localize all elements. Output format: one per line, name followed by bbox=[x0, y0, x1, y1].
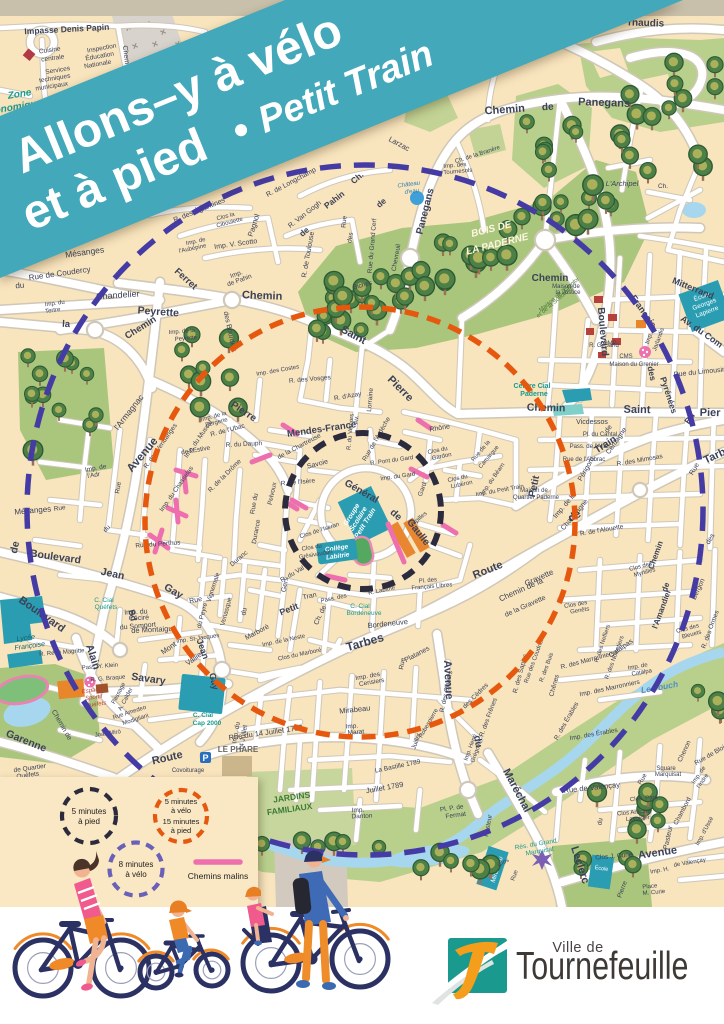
svg-text:15 minutes: 15 minutes bbox=[163, 817, 200, 826]
svg-text:Danton: Danton bbox=[351, 813, 373, 821]
svg-text:R. G. Sand: R. G. Sand bbox=[589, 343, 619, 349]
svg-text:Avenue: Avenue bbox=[441, 660, 455, 700]
svg-text:Saint: Saint bbox=[623, 404, 650, 416]
svg-text:Panegans: Panegans bbox=[578, 96, 630, 110]
svg-text:Quéfets: Quéfets bbox=[95, 604, 119, 611]
svg-text:L'Archipel: L'Archipel bbox=[606, 179, 639, 188]
svg-text:à vélo: à vélo bbox=[125, 870, 147, 879]
svg-text:5 minutes: 5 minutes bbox=[72, 807, 107, 816]
svg-text:Chemin: Chemin bbox=[527, 402, 566, 415]
svg-text:C. Cial: C. Cial bbox=[193, 712, 213, 719]
svg-text:P: P bbox=[202, 753, 208, 763]
svg-text:Marquisat: Marquisat bbox=[655, 772, 682, 778]
svg-text:CMS: CMS bbox=[619, 354, 632, 360]
svg-text:du: du bbox=[471, 735, 484, 749]
svg-text:Chemins malins: Chemins malins bbox=[188, 871, 248, 881]
svg-text:LE PHARE: LE PHARE bbox=[218, 745, 259, 754]
svg-text:à pied: à pied bbox=[78, 817, 100, 826]
svg-text:Paderne: Paderne bbox=[520, 391, 548, 398]
svg-text:Cap 2000: Cap 2000 bbox=[193, 720, 222, 727]
svg-text:C. Cial: C. Cial bbox=[94, 597, 114, 604]
svg-text:la: la bbox=[62, 319, 71, 330]
svg-text:8 minutes: 8 minutes bbox=[119, 860, 154, 869]
svg-text:C. Cial: C. Cial bbox=[350, 603, 370, 610]
svg-text:Chemin: Chemin bbox=[532, 273, 569, 284]
svg-text:Ch.: Ch. bbox=[658, 183, 668, 190]
svg-text:la Justice: la Justice bbox=[555, 290, 581, 296]
svg-text:de: de bbox=[8, 540, 22, 555]
svg-text:de: de bbox=[542, 102, 555, 114]
svg-text:Maison du Grenier: Maison du Grenier bbox=[609, 362, 658, 368]
svg-text:Tournefeuille: Tournefeuille bbox=[516, 944, 688, 987]
svg-text:du: du bbox=[15, 281, 25, 291]
svg-text:Vicdessos: Vicdessos bbox=[576, 419, 608, 426]
svg-text:Bordeneuve: Bordeneuve bbox=[346, 610, 381, 617]
svg-text:à pied: à pied bbox=[171, 826, 191, 835]
svg-text:5 minutes: 5 minutes bbox=[165, 797, 198, 806]
svg-text:Covoiturage: Covoiturage bbox=[172, 768, 205, 774]
svg-text:Pier: Pier bbox=[700, 407, 722, 419]
svg-text:Chemin: Chemin bbox=[242, 289, 283, 302]
svg-text:Rue: Rue bbox=[340, 215, 348, 228]
svg-text:à vélo: à vélo bbox=[171, 806, 191, 815]
